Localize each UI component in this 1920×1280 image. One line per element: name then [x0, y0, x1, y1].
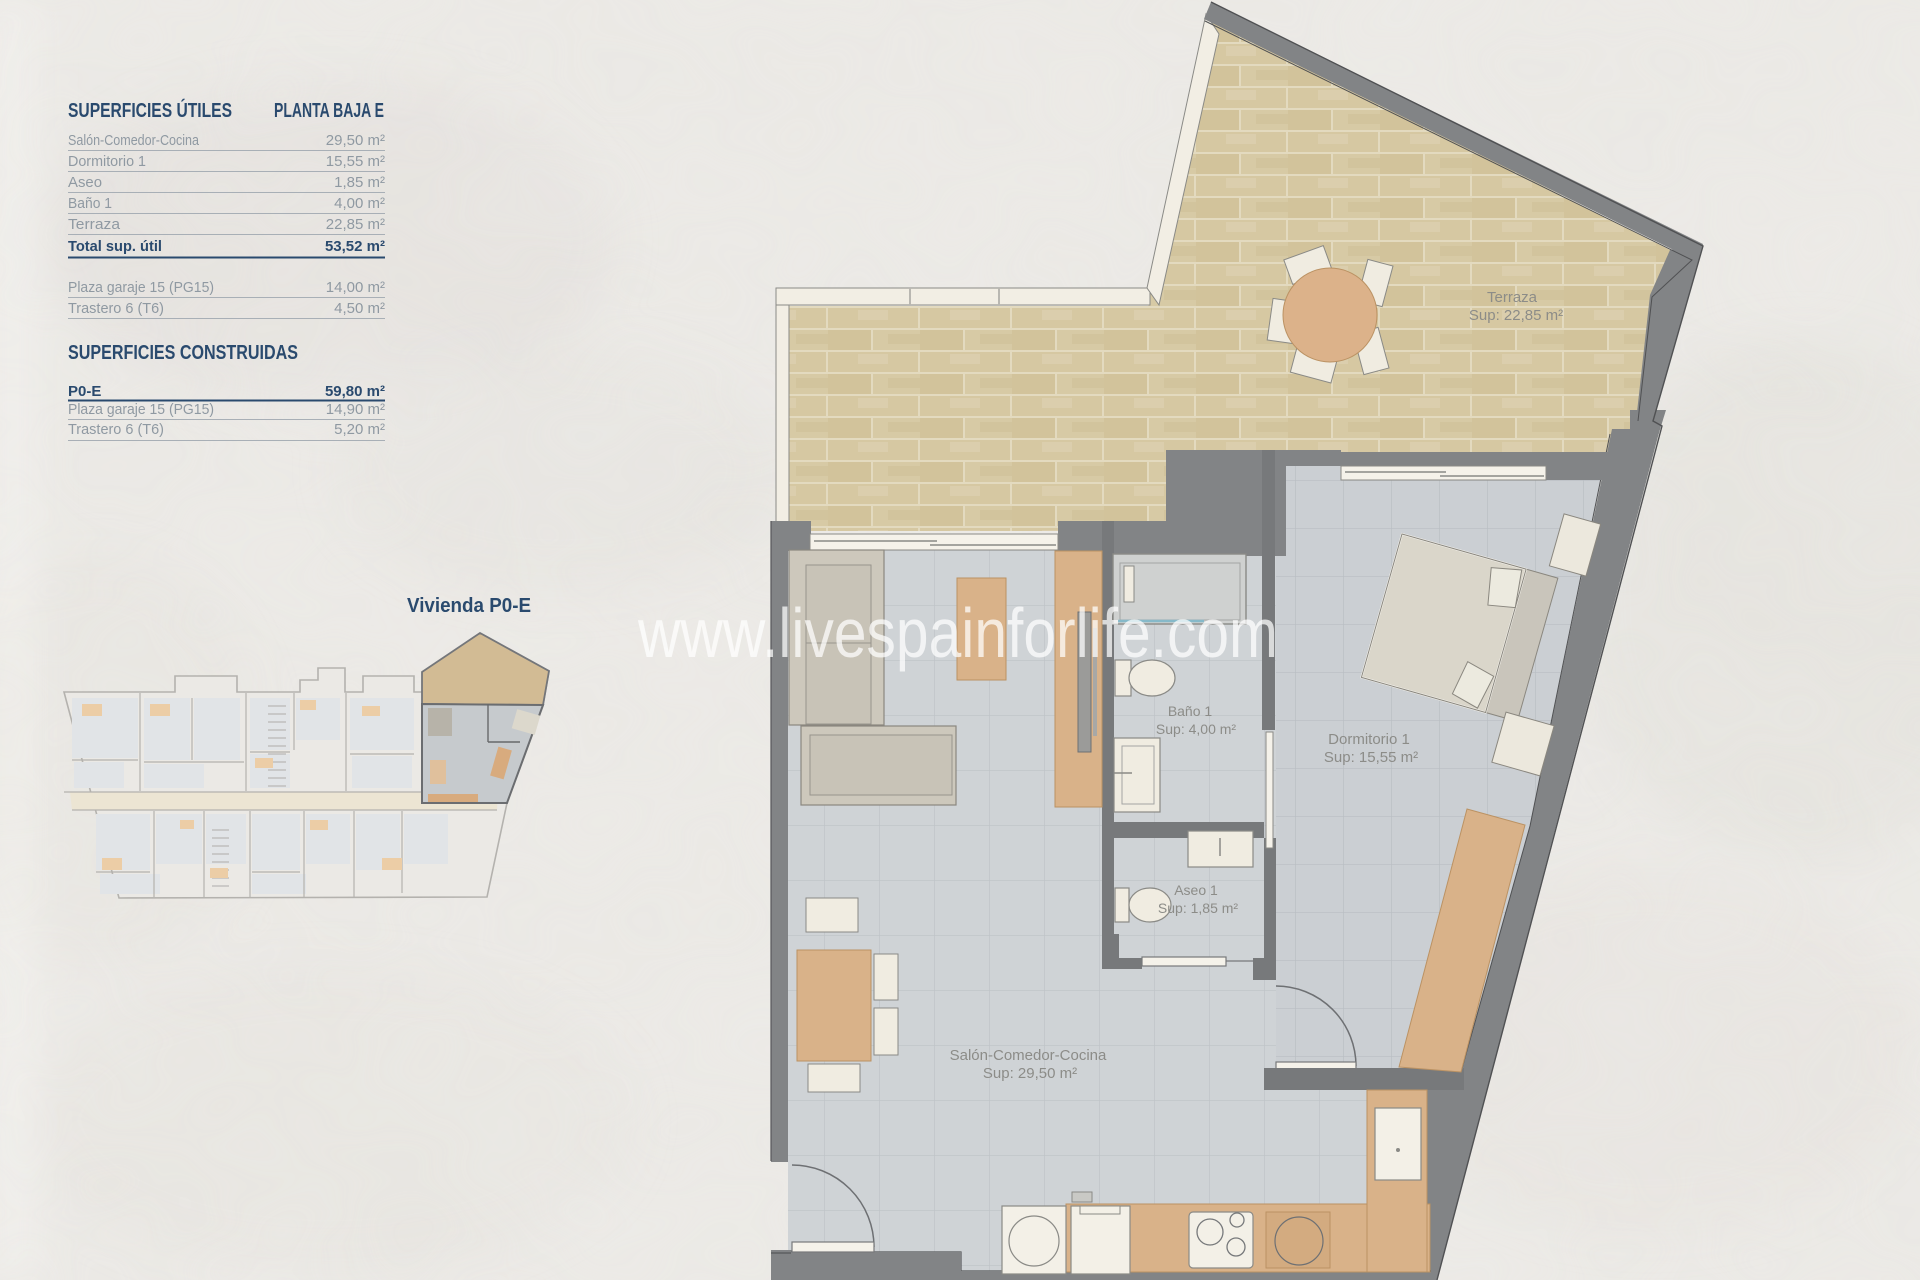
svg-text:Dormitorio 1: Dormitorio 1 — [68, 153, 146, 170]
svg-text:5,20 m²: 5,20 m² — [334, 421, 385, 438]
svg-text:Baño 1: Baño 1 — [68, 195, 112, 212]
svg-text:Trastero 6 (T6): Trastero 6 (T6) — [68, 300, 164, 317]
svg-text:53,52 m²: 53,52 m² — [325, 238, 385, 255]
svg-text:Terraza: Terraza — [1487, 289, 1538, 306]
svg-text:Aseo 1: Aseo 1 — [1174, 882, 1218, 898]
svg-text:Sup: 1,85 m²: Sup: 1,85 m² — [1158, 900, 1238, 916]
svg-text:Trastero 6 (T6): Trastero 6 (T6) — [68, 421, 164, 438]
svg-text:22,85 m²: 22,85 m² — [326, 216, 385, 233]
svg-text:1,85 m²: 1,85 m² — [334, 174, 385, 191]
svg-text:Salón-Comedor-Cocina: Salón-Comedor-Cocina — [68, 132, 200, 149]
svg-text:SUPERFICIES ÚTILES: SUPERFICIES ÚTILES — [68, 98, 232, 122]
svg-text:14,00 m²: 14,00 m² — [326, 279, 385, 296]
svg-text:Aseo: Aseo — [68, 174, 102, 191]
svg-text:Total sup. útil: Total sup. útil — [68, 238, 162, 255]
svg-text:29,50 m²: 29,50 m² — [326, 132, 385, 149]
svg-text:Plaza garaje 15 (PG15): Plaza garaje 15 (PG15) — [68, 279, 214, 296]
svg-text:4,00 m²: 4,00 m² — [334, 195, 385, 212]
svg-text:Sup: 15,55 m²: Sup: 15,55 m² — [1324, 749, 1418, 766]
svg-text:15,55 m²: 15,55 m² — [326, 153, 385, 170]
svg-text:4,50 m²: 4,50 m² — [334, 300, 385, 317]
svg-text:Sup: 29,50 m²: Sup: 29,50 m² — [983, 1065, 1077, 1082]
svg-text:www.livespainforlife.com: www.livespainforlife.com — [637, 594, 1278, 672]
svg-text:Dormitorio 1: Dormitorio 1 — [1328, 731, 1410, 748]
svg-text:Vivienda P0-E: Vivienda P0-E — [407, 595, 531, 617]
svg-text:SUPERFICIES CONSTRUIDAS: SUPERFICIES CONSTRUIDAS — [68, 342, 298, 364]
svg-text:Sup: 22,85 m²: Sup: 22,85 m² — [1469, 307, 1563, 324]
svg-text:PLANTA BAJA E: PLANTA BAJA E — [274, 100, 384, 122]
svg-text:14,90 m²: 14,90 m² — [326, 401, 385, 418]
svg-text:Sup: 4,00 m²: Sup: 4,00 m² — [1156, 721, 1236, 737]
svg-text:Terraza: Terraza — [68, 216, 121, 233]
svg-text:Salón-Comedor-Cocina: Salón-Comedor-Cocina — [950, 1047, 1107, 1064]
svg-text:59,80 m²: 59,80 m² — [325, 383, 385, 400]
svg-text:P0-E: P0-E — [68, 383, 101, 400]
svg-text:Baño 1: Baño 1 — [1168, 703, 1213, 719]
svg-text:Plaza garaje 15 (PG15): Plaza garaje 15 (PG15) — [68, 401, 214, 418]
